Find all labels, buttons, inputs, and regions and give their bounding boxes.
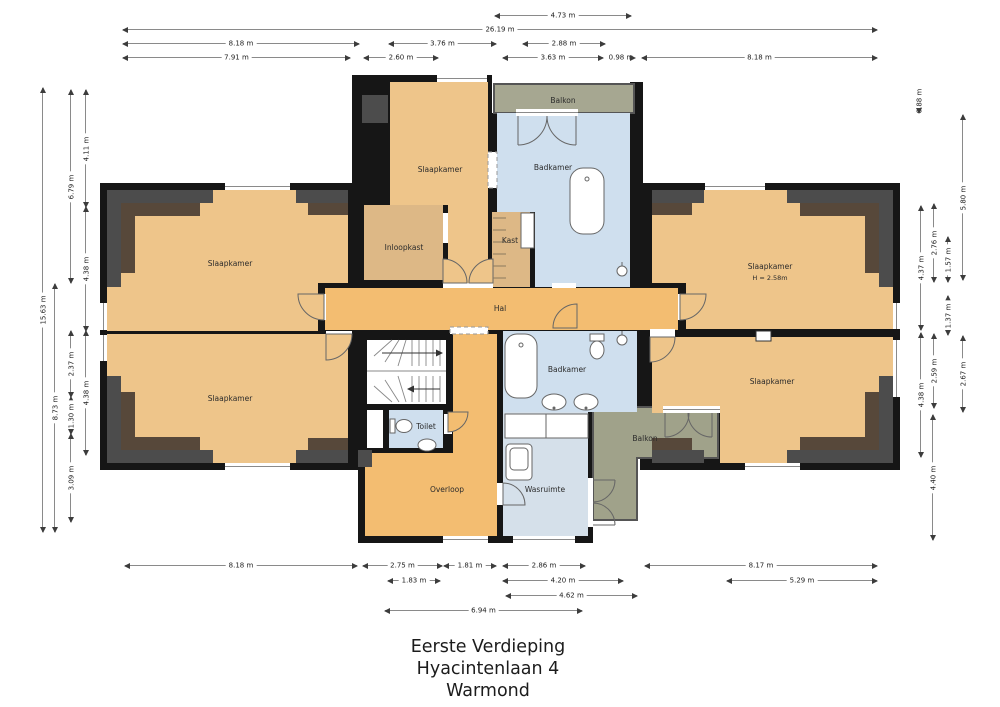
floorplan-drawing: Slaapkamer Slaapkamer Slaapkamer Slaapka… [0,0,1000,707]
label-slaapkamer-bottom-right: Slaapkamer [750,377,796,386]
label-kast: Kast [502,236,518,245]
dim-left-3: 2.37 m [70,331,71,397]
dim-right-6: 2.59 m [933,334,934,408]
dim-bottom-1: 2.75 m [363,565,442,566]
dim-bottom-2: 1.81 m [444,565,496,566]
sink-top-bath [617,266,627,276]
dim-bottom-6: 4.20 m [503,580,623,581]
dim-top-9: 8.18 m [642,57,877,58]
dim-left-0: 15.63 m [42,88,43,532]
label-balkon-bottom: Balkon [632,434,657,443]
dim-right-5: 1.37 m [947,296,948,335]
dim-bottom-7: 5.29 m [727,580,877,581]
label-slaapkamer-center: Slaapkamer [418,165,464,174]
dim-bottom-3: 2.86 m [503,565,585,566]
dim-top-3: 3.76 m [389,43,496,44]
label-inloopkast: Inloopkast [385,243,424,252]
toilet-tank-bath [590,334,604,341]
dim-left-7: 4.38 m [85,207,86,331]
floorplan-page: Slaapkamer Slaapkamer Slaapkamer Slaapka… [0,0,1000,707]
dim-right-1: 5.80 m [962,115,963,280]
dim-right-8: 4.38 m [920,333,921,457]
toilet-bath [590,341,604,359]
label-balkon-top: Balkon [550,96,575,105]
dim-top-0: 4.73 m [495,15,631,16]
label-toilet: Toilet [415,422,436,431]
dim-bottom-9: 6.94 m [385,610,582,611]
label-hal: Hal [494,304,506,313]
plan-title-city: Warmond [288,680,688,702]
label-badkamer-top: Badkamer [534,163,573,172]
label-slaapkamer-top-left: Slaapkamer [208,259,254,268]
toilet-bowl [396,420,412,433]
dim-left-1: 8.73 m [54,284,55,532]
dim-left-6: 4.11 m [85,90,86,207]
label-overloop: Overloop [430,485,464,494]
plan-title-floor: Eerste Verdieping [288,636,688,658]
label-slaapkamer-top-right: Slaapkamer [748,262,794,271]
dim-top-1: 26.19 m [123,29,877,30]
toilet-sink [418,439,436,451]
dim-top-8: 0.98 m [607,57,635,58]
dim-left-5: 3.09 m [70,434,71,522]
dim-right-7: 2.67 m [962,336,963,412]
dim-right-4: 4.37 m [920,206,921,330]
sink-round-bath [617,335,627,345]
label-wasruimte: Wasruimte [525,485,566,494]
dim-right-2: 2.76 m [933,204,934,282]
stairwell [367,340,446,404]
dim-bottom-8: 4.62 m [506,595,637,596]
dim-bottom-4: 8.17 m [645,565,877,566]
dim-right-9: 4.40 m [932,415,933,540]
dim-top-5: 7.91 m [123,57,350,58]
dim-top-4: 2.88 m [523,43,605,44]
dim-left-2: 6.79 m [70,90,71,283]
dim-top-7: 3.63 m [503,57,603,58]
dim-right-0: 0.88 m [918,88,919,113]
dim-right-3: 1.57 m [947,237,948,282]
shaft [367,410,383,448]
dim-top-6: 2.60 m [364,57,438,58]
label-slaapkamer-bottom-left: Slaapkamer [208,394,254,403]
bath-cabinet [521,213,534,248]
plan-title-address: Hyacintenlaan 4 [288,658,688,680]
dim-left-4: 1.30 m [70,397,71,434]
dim-bottom-5: 1.83 m [388,580,440,581]
label-slaapkamer-top-right-height: H = 2.58m [752,274,787,282]
label-badkamer-bottom: Badkamer [548,365,587,374]
dim-top-2: 8.18 m [123,43,359,44]
plan-title: Eerste Verdieping Hyacintenlaan 4 Warmon… [288,636,688,702]
toilet-tank [390,419,395,433]
dim-left-8: 4.38 m [85,331,86,455]
dim-bottom-0: 8.18 m [125,565,357,566]
